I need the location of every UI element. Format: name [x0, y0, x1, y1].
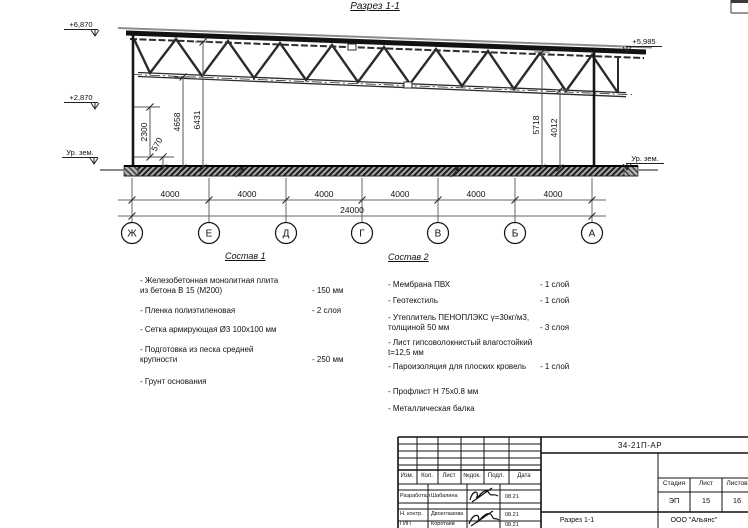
sheet-count: 16 [733, 496, 741, 505]
material-text: - Пленка полиэтиленовая [140, 306, 312, 316]
material-text: - Подготовка из песка средней крупности [140, 345, 312, 365]
dim-2300: 2300 [139, 122, 149, 141]
frame-corner [731, 0, 748, 13]
axis-label: В [435, 229, 442, 240]
tb-col-list: Лист [442, 473, 455, 479]
signatures [469, 488, 499, 526]
bay-dim: 4000 [315, 189, 334, 199]
stage-col: Лист [699, 480, 713, 487]
tb-company: ООО "Альянс" [671, 517, 718, 524]
tb-name: Коротаев [431, 521, 455, 527]
list-item: - Грунт основания [140, 377, 312, 387]
tb-col-kol: Кол. [421, 473, 433, 479]
axis-label: Б [512, 229, 519, 240]
axis-label: А [589, 229, 596, 240]
list-item: - Профлист Н 75х0.8 мм [388, 387, 560, 397]
elev-right-ground: Ур. зем. [631, 154, 659, 163]
dim-6431: 6431 [192, 110, 202, 129]
list-item: - Геотекстиль - 1 слой [388, 296, 560, 306]
tb-name: Шабалина [431, 493, 458, 499]
bay-dim: 4000 [544, 189, 563, 199]
material-text: - Профлист Н 75х0.8 мм [388, 387, 560, 397]
sostav1-title: Состав 1 [225, 251, 266, 261]
vertical-dimensions [134, 39, 568, 172]
material-text: - Грунт основания [140, 377, 312, 387]
tb-date: 08.21 [505, 522, 519, 528]
bay-dim: 4000 [238, 189, 257, 199]
axis-label: Г [359, 229, 365, 240]
material-text: - Мембрана ПВХ [388, 280, 560, 290]
elev-left-top: +6,870 [69, 20, 92, 29]
material-value: - 1 слой [540, 362, 569, 372]
list-item: - Пароизоляция для плоских кровель - 1 с… [388, 362, 560, 372]
axis-label: Е [206, 229, 213, 240]
elev-left-ground: Ур. зем. [66, 148, 94, 157]
tb-col-izm: Изм. [401, 473, 414, 479]
list-item: - Подготовка из песка средней крупности … [140, 345, 312, 365]
material-text: - Железобетонная монолитная плита из бет… [140, 276, 312, 296]
material-text: - Лист гипсоволокнистый влагостойкий t=1… [388, 338, 560, 358]
material-text: - Геотекстиль [388, 296, 560, 306]
dim-4012: 4012 [549, 118, 559, 137]
tb-col-podl: Подл. [488, 473, 504, 479]
elev-left-mid: +2,870 [69, 93, 92, 102]
tb-col-data: Дата [517, 473, 530, 479]
tb-role: ГИП [400, 521, 411, 527]
axis-bubbles: Ж Е Д Г В Б А [122, 223, 603, 244]
material-text: - Пароизоляция для плоских кровель [388, 362, 560, 372]
stage-col: Листов [726, 480, 747, 487]
dimension-chain [118, 178, 606, 222]
walls [133, 32, 594, 166]
list-item: - Пленка полиэтиленовая - 2 слоя [140, 306, 312, 316]
material-text: - Металлическая балка [388, 404, 560, 414]
tb-sheet-title: Разрез 1-1 [560, 517, 594, 524]
material-text: - Утеплитель ПЕНОПЛЭКС γ=30кг/м3, толщин… [388, 313, 560, 333]
tb-role: Н. контр. [400, 511, 423, 517]
sheet-number: 15 [702, 496, 710, 505]
axis-label: Ж [127, 229, 137, 240]
material-value: - 1 слой [540, 296, 569, 306]
dim-4658: 4658 [172, 112, 182, 131]
stage-col: Стадия [663, 480, 685, 487]
vertical-dimension-labels: 2300 570 4658 6431 5718 4012 [139, 110, 559, 153]
elev-right-top: +5,985 [632, 37, 655, 46]
bay-dim: 4000 [391, 189, 410, 199]
bay-dim: 4000 [161, 189, 180, 199]
material-value: - 150 мм [312, 286, 343, 296]
dim-570: 570 [149, 135, 165, 152]
material-value: - 1 слой [540, 280, 569, 290]
axis-label: Д [283, 229, 290, 240]
stage-value: ЭП [669, 496, 680, 505]
tb-col-ndoc: №док. [463, 473, 481, 479]
list-item: - Металлическая балка [388, 404, 560, 414]
list-item: - Мембрана ПВХ - 1 слой [388, 280, 560, 290]
dim-5718: 5718 [531, 115, 541, 134]
material-value: - 250 мм [312, 355, 343, 365]
material-value: - 2 слоя [312, 306, 341, 316]
tb-name: Двоеглазова [431, 511, 463, 517]
doc-number: 34-21П-АР [618, 441, 662, 450]
tb-date: 08.21 [505, 494, 519, 500]
material-text: - Сетка армирующая Ø3 100х100 мм [140, 325, 312, 335]
bay-dim: 4000 [467, 189, 486, 199]
list-item: - Железобетонная монолитная плита из бет… [140, 276, 312, 296]
tb-role: Разработал [400, 493, 430, 499]
list-item: - Сетка армирующая Ø3 100х100 мм [140, 325, 312, 335]
total-dim: 24000 [340, 205, 364, 215]
tb-date: 08.21 [505, 512, 519, 518]
list-item: - Лист гипсоволокнистый влагостойкий t=1… [388, 338, 560, 358]
drawing-sheet: Разрез 1-1 [0, 0, 748, 528]
list-item: - Утеплитель ПЕНОПЛЭКС γ=30кг/м3, толщин… [388, 313, 560, 333]
material-value: - 3 слоя [540, 323, 569, 333]
sostav2-title: Состав 2 [388, 252, 429, 262]
roof [118, 28, 652, 58]
